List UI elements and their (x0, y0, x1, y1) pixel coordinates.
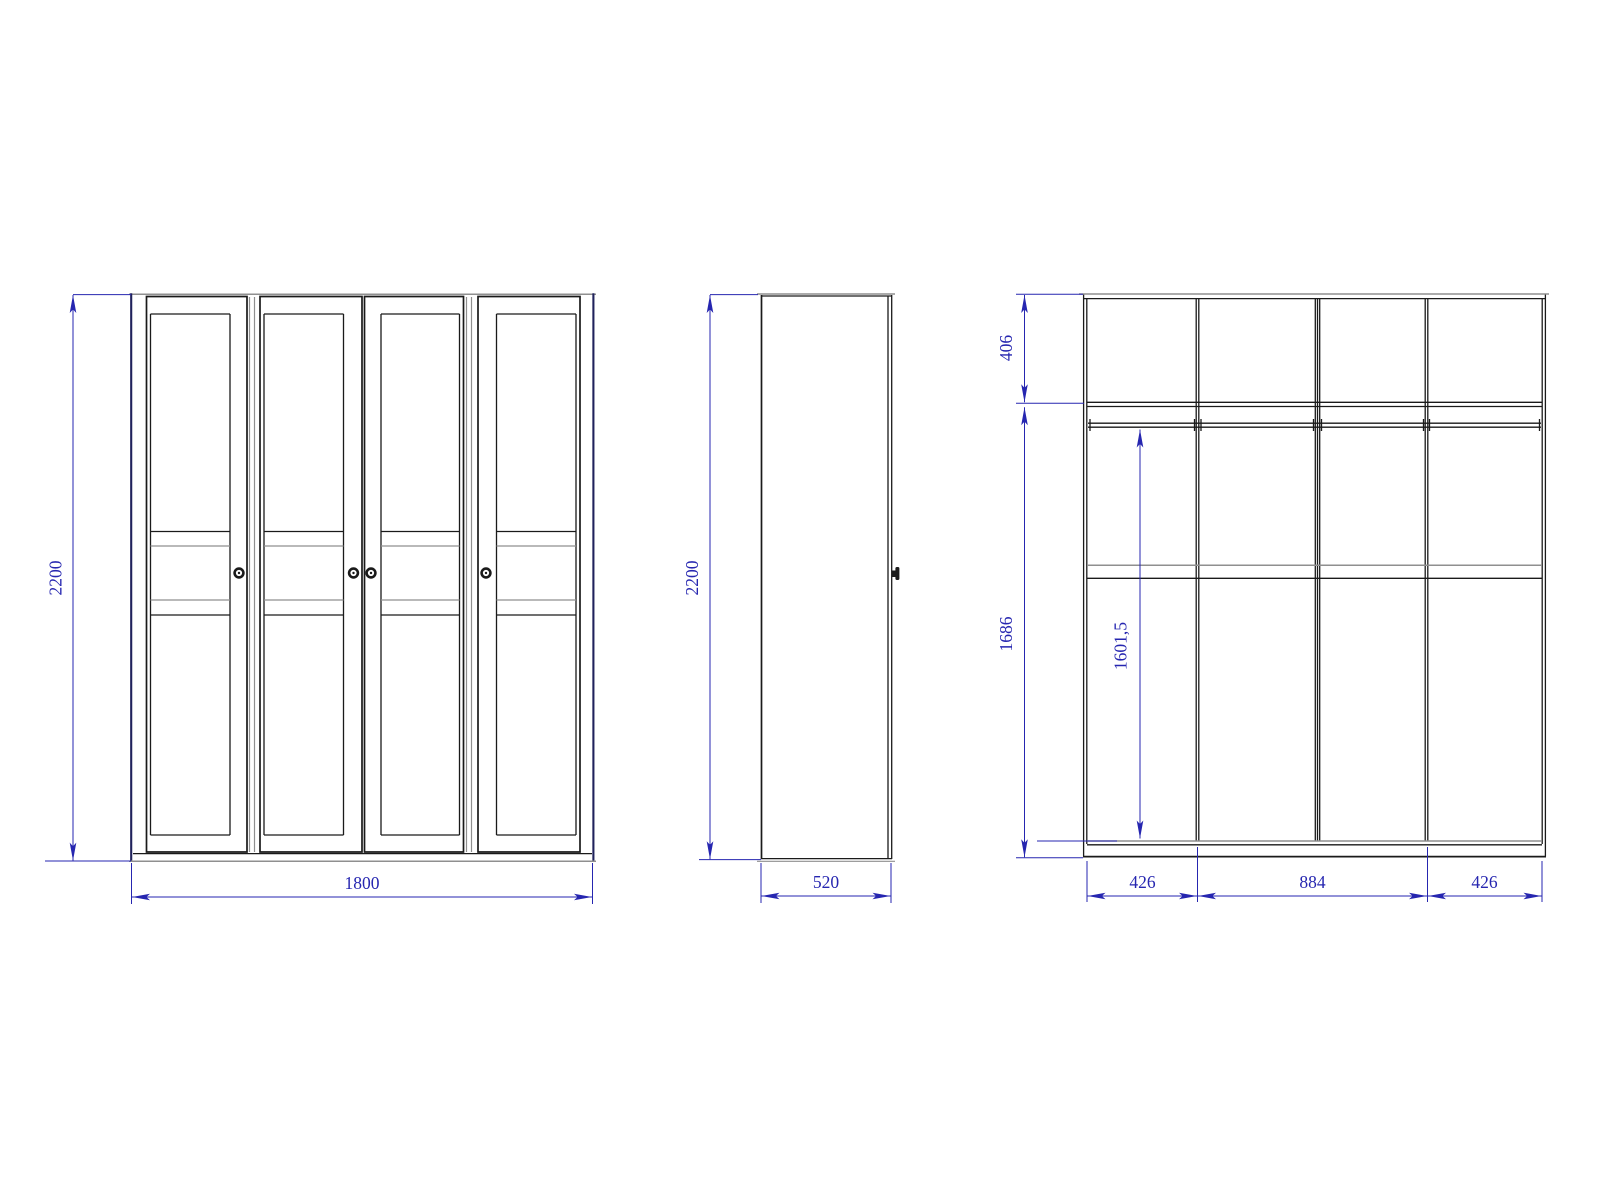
internal-column-label-3: 426 (1471, 872, 1498, 892)
internal-carcass (1079, 294, 1549, 857)
door-knob (235, 569, 244, 578)
front-door-1 (147, 297, 248, 853)
side-depth-label: 520 (813, 872, 840, 892)
side-view: 2200 520 (682, 294, 899, 903)
front-door-2 (260, 297, 362, 853)
front-width-dimension: 1800 (132, 863, 593, 904)
internal-body-dimension: 1686 (996, 407, 1083, 858)
front-width-label: 1800 (345, 873, 380, 893)
side-height-label: 2200 (682, 560, 702, 595)
front-height-label: 2200 (46, 560, 66, 595)
internal-hanging-label: 1601,5 (1111, 622, 1131, 670)
front-door-3 (365, 297, 464, 853)
front-height-dimension: 2200 (45, 295, 131, 861)
door-handle (892, 567, 899, 580)
internal-column-label-1: 426 (1129, 872, 1156, 892)
internal-top-label: 406 (996, 335, 1016, 362)
side-carcass (757, 294, 899, 861)
front-door-4 (478, 297, 580, 853)
internal-hanging-dimension: 1601,5 (1037, 430, 1140, 842)
side-height-dimension: 2200 (682, 295, 761, 860)
internal-body-label: 1686 (996, 616, 1016, 651)
internal-view: 406 1686 1601,5 426 884 426 (996, 294, 1549, 902)
internal-top-dimension: 406 (996, 294, 1084, 403)
internal-column-label-2: 884 (1299, 872, 1326, 892)
front-view: 2200 1800 (45, 293, 596, 904)
door-knob (349, 569, 358, 578)
side-depth-dimension: 520 (761, 863, 891, 903)
wardrobe-technical-drawing: 2200 1800 220 (0, 0, 1600, 1200)
door-knob (482, 569, 491, 578)
hanging-rod (1088, 419, 1541, 431)
internal-column-dimensions: 426 884 426 (1087, 847, 1542, 902)
drawing-canvas: 2200 1800 220 (0, 0, 1600, 1200)
door-knob (367, 569, 376, 578)
